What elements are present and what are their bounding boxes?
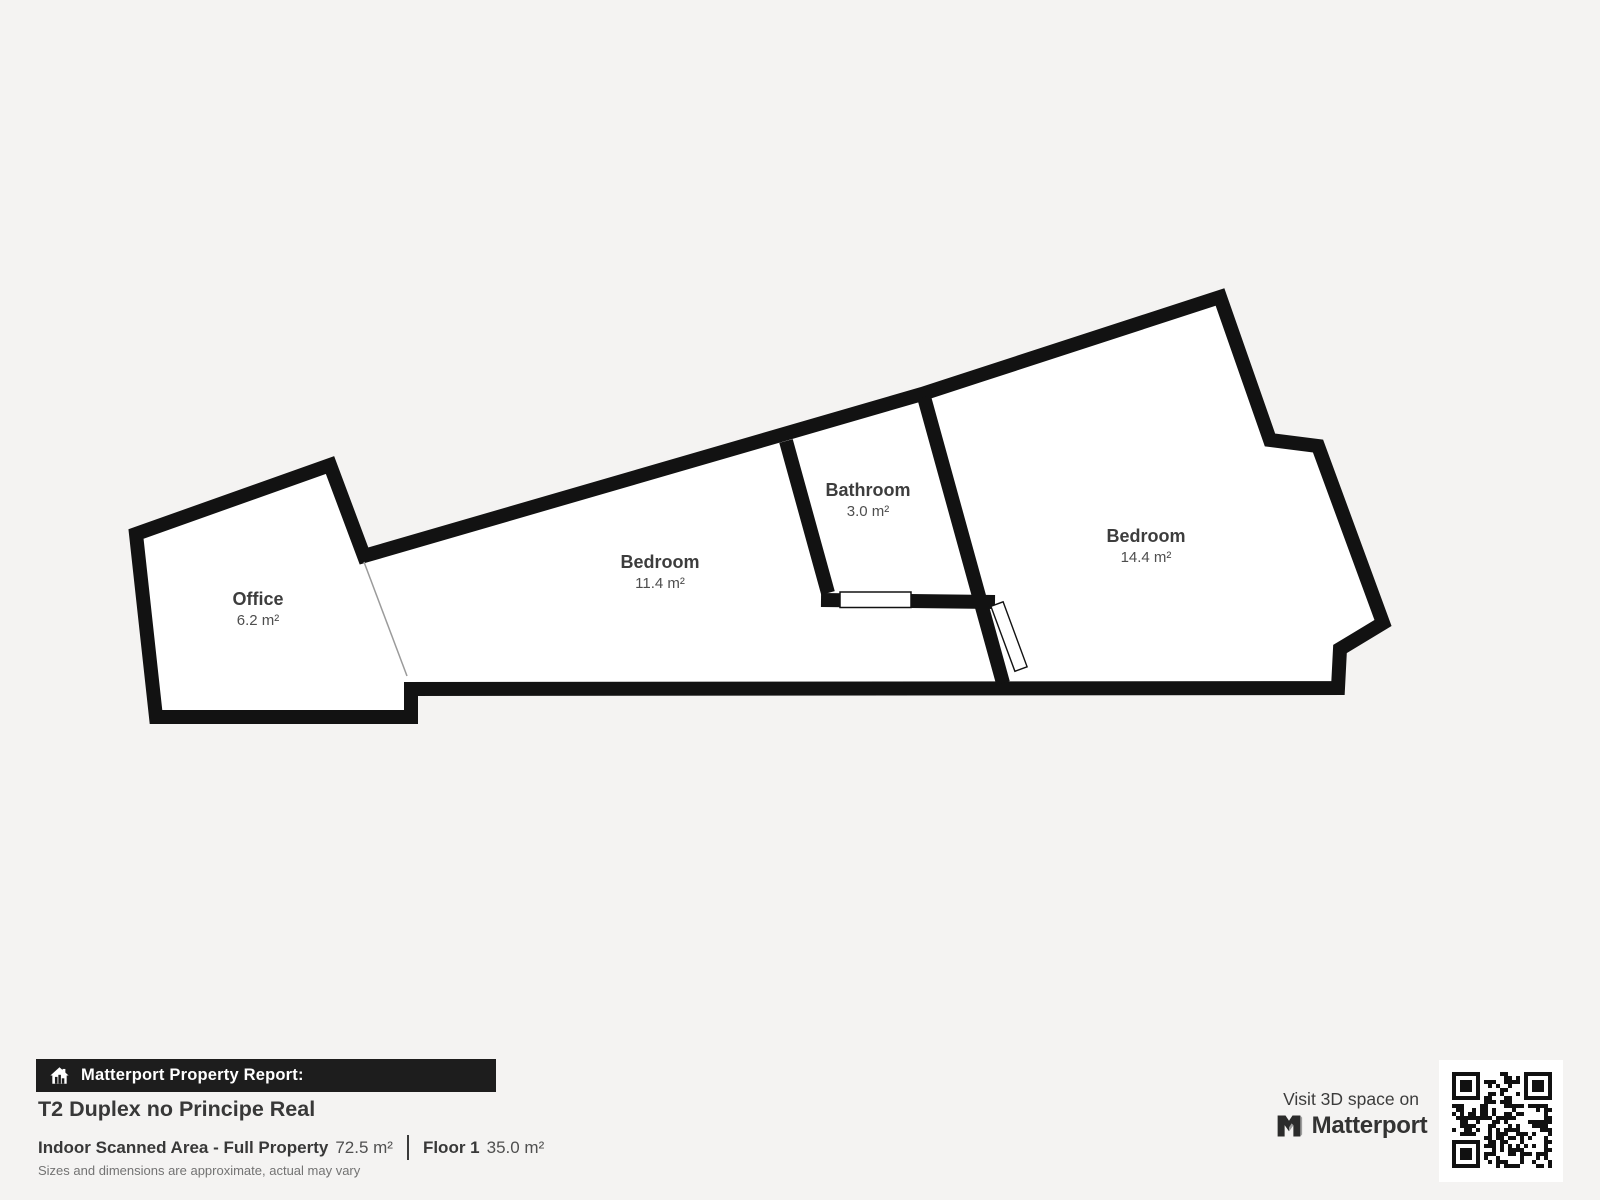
- report-stats: Indoor Scanned Area - Full Property 72.5…: [38, 1135, 544, 1160]
- scanned-area-label: Indoor Scanned Area - Full Property: [38, 1138, 328, 1158]
- qr-code: [1439, 1060, 1563, 1182]
- floor-label: Floor 1: [423, 1138, 480, 1158]
- matterport-logo-icon: [1275, 1112, 1303, 1140]
- property-title: T2 Duplex no Principe Real: [38, 1097, 315, 1122]
- house-chart-icon: [49, 1065, 70, 1086]
- floor-area: [136, 297, 1383, 717]
- report-header-bar: Matterport Property Report:: [36, 1059, 496, 1092]
- floorplan-drawing: [0, 0, 1600, 1200]
- disclaimer-text: Sizes and dimensions are approximate, ac…: [38, 1163, 360, 1178]
- matterport-wordmark: Matterport: [1312, 1112, 1428, 1140]
- door-bathroom: [840, 592, 911, 608]
- floor-value: 35.0 m²: [487, 1138, 545, 1158]
- stats-divider: [407, 1135, 409, 1160]
- matterport-brand: Matterport: [1246, 1112, 1456, 1140]
- visit-3d-label: Visit 3D space on: [1246, 1089, 1456, 1110]
- floorplan-page: Office 6.2 m² Bedroom 11.4 m² Bathroom 3…: [0, 0, 1600, 1200]
- scanned-area-value: 72.5 m²: [335, 1138, 393, 1158]
- report-bar-label: Matterport Property Report:: [81, 1066, 304, 1085]
